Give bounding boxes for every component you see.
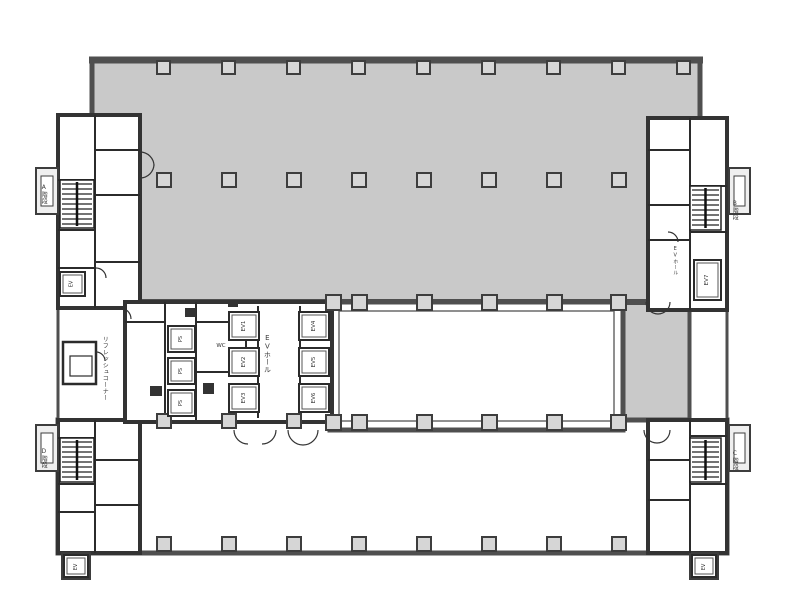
column-pillar	[677, 61, 690, 74]
column-pillar	[287, 173, 301, 187]
column-pillar	[326, 415, 341, 430]
column-pillar	[612, 173, 626, 187]
floor-plan-canvas	[0, 0, 787, 616]
elevator-box	[64, 555, 88, 577]
column-pillar	[157, 173, 171, 187]
column-pillar	[417, 61, 430, 74]
column-pillar	[417, 415, 432, 430]
column-pillar	[352, 173, 366, 187]
column-pillar	[222, 61, 235, 74]
column-pillar	[352, 537, 366, 551]
column-pillar	[482, 295, 497, 310]
column-pillar	[352, 415, 367, 430]
column-pillar	[612, 537, 626, 551]
column-pillar	[547, 537, 561, 551]
elevator-box	[299, 312, 329, 340]
elevator-box	[168, 326, 195, 352]
stair-symbol	[60, 438, 94, 482]
column-pillar	[157, 61, 170, 74]
column-pillar	[547, 173, 561, 187]
column-pillar	[482, 537, 496, 551]
column-pillar	[157, 537, 171, 551]
elevator-box	[694, 260, 721, 300]
tenant-area-lower	[58, 420, 727, 553]
column-pillar	[222, 173, 236, 187]
stair-symbol	[60, 180, 94, 228]
column-pillar	[482, 173, 496, 187]
floor-plan: A階段 D階段 B階段 C階段 EVホール EVホール リフレッシュコーナー E…	[0, 0, 787, 616]
elevator-box	[60, 272, 85, 296]
column-pillar	[287, 61, 300, 74]
elevator-box	[299, 384, 329, 412]
column-pillar	[352, 295, 367, 310]
column-pillar	[547, 415, 562, 430]
elevator-box	[299, 348, 329, 376]
column-pillar	[352, 61, 365, 74]
column-pillar	[547, 295, 562, 310]
elevator-box	[229, 348, 259, 376]
stair-symbol	[690, 438, 721, 482]
column-pillar	[547, 61, 560, 74]
elevator-box	[229, 384, 259, 412]
column-pillar	[417, 537, 431, 551]
column-pillar	[482, 61, 495, 74]
column-pillar	[287, 414, 301, 428]
column-pillar	[611, 415, 626, 430]
elevator-box	[168, 390, 195, 416]
elevator-box	[168, 358, 195, 384]
right-mid-corridor	[690, 308, 727, 422]
column-pillar	[222, 537, 236, 551]
column-pillar	[417, 295, 432, 310]
void-lightwell	[330, 302, 623, 430]
column-pillar	[482, 415, 497, 430]
column-pillar	[417, 173, 431, 187]
left-mid-corridor	[58, 308, 128, 422]
column-pillar	[611, 295, 626, 310]
column-pillar	[287, 537, 301, 551]
elevator-box	[229, 312, 259, 340]
column-pillar	[612, 61, 625, 74]
column-pillar	[222, 414, 236, 428]
stair-symbol	[690, 186, 721, 230]
column-pillar	[326, 295, 341, 310]
elevator-box	[692, 555, 716, 577]
